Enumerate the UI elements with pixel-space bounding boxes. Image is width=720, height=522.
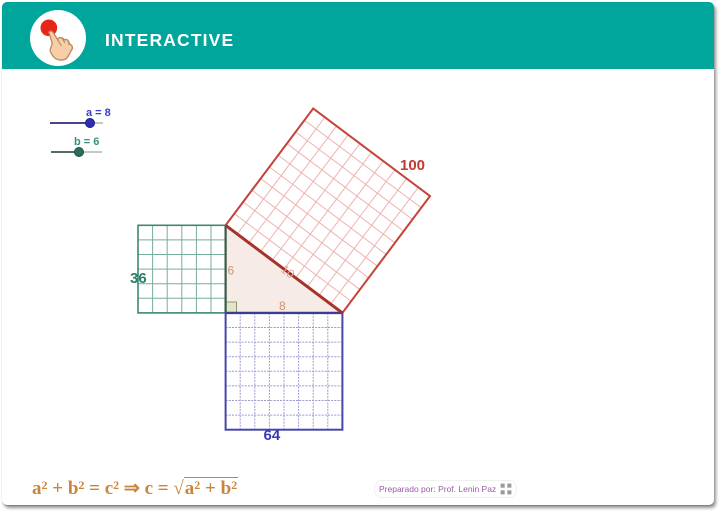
svg-text:100: 100 [400,157,425,174]
svg-text:64: 64 [264,427,281,444]
svg-text:a = 8: a = 8 [86,107,111,119]
svg-text:8: 8 [279,299,286,313]
svg-text:b = 6: b = 6 [74,136,99,148]
svg-text:6: 6 [228,264,235,278]
svg-text:36: 36 [130,270,147,287]
